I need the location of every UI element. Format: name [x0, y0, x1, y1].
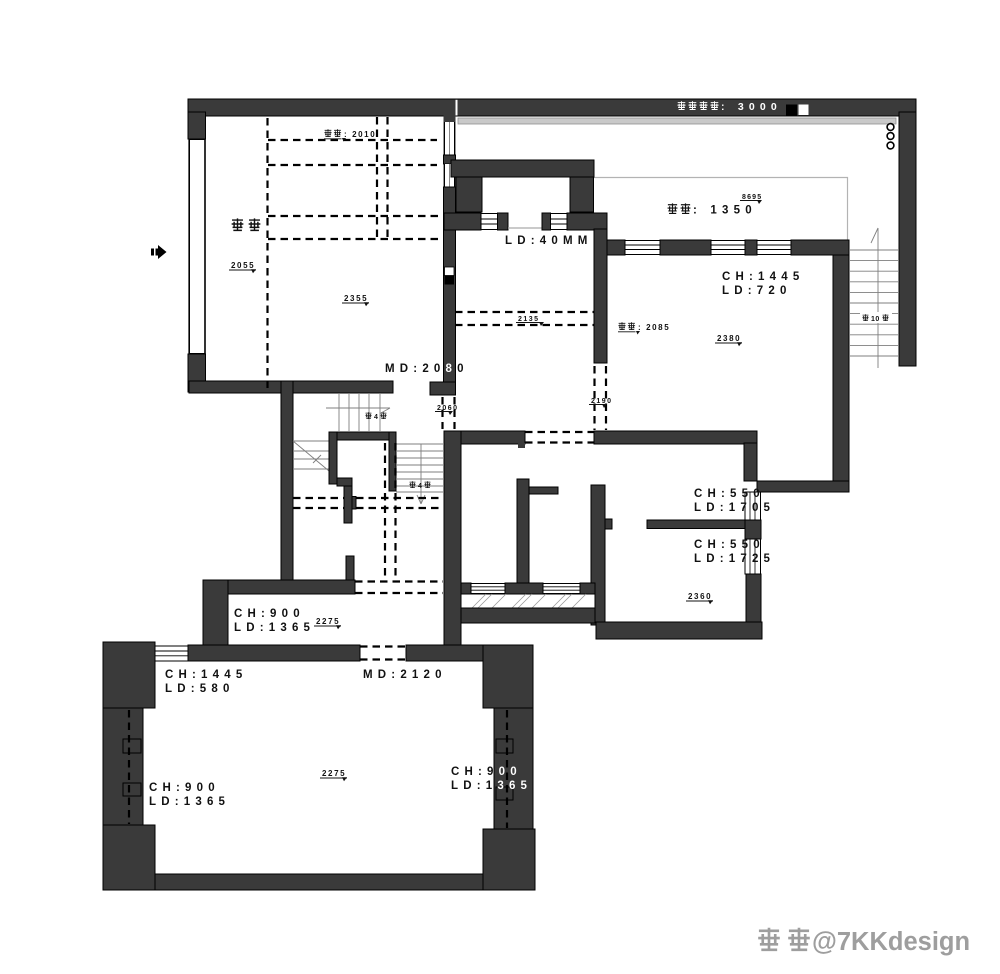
svg-text:CH:550: CH:550 [694, 488, 765, 500]
svg-text:2355: 2355 [344, 294, 368, 303]
svg-text:2135: 2135 [518, 316, 540, 323]
svg-text:2190: 2190 [591, 398, 613, 405]
svg-text:4: 4 [374, 414, 378, 421]
svg-text:4: 4 [418, 483, 422, 490]
svg-text:8695: 8695 [742, 194, 762, 201]
svg-text:2275: 2275 [322, 769, 346, 778]
svg-text:2360: 2360 [688, 592, 712, 601]
svg-text:CH:550: CH:550 [694, 539, 765, 551]
svg-text:CH:1445: CH:1445 [722, 271, 804, 283]
svg-text:: 1350: : 1350 [693, 205, 757, 217]
svg-text:MD:2120: MD:2120 [363, 669, 447, 681]
svg-text:LD:40MM: LD:40MM [505, 235, 593, 247]
svg-text:LD:1365: LD:1365 [149, 796, 230, 808]
svg-text:: 2010: : 2010 [344, 130, 376, 139]
svg-text:: 3000: : 3000 [721, 101, 782, 113]
svg-text:: 2085: : 2085 [638, 323, 670, 332]
svg-text:2060: 2060 [437, 405, 459, 412]
svg-text:CH:900: CH:900 [234, 608, 305, 620]
svg-text:@7KKdesign: @7KKdesign [812, 928, 970, 956]
svg-text:MD:2080: MD:2080 [385, 363, 469, 375]
svg-text:LD:580: LD:580 [165, 683, 235, 695]
svg-text:CH:1445: CH:1445 [165, 669, 247, 681]
svg-text:LD:1705: LD:1705 [694, 502, 775, 514]
svg-text:10: 10 [871, 316, 880, 323]
svg-text:LD:1725: LD:1725 [694, 553, 775, 565]
svg-text:LD:1365: LD:1365 [234, 622, 315, 634]
svg-text:LD:720: LD:720 [722, 285, 792, 297]
svg-text:2055: 2055 [231, 261, 255, 270]
svg-text:CH:900: CH:900 [149, 782, 220, 794]
svg-text:2275: 2275 [316, 617, 340, 626]
svg-text:2380: 2380 [717, 334, 741, 343]
